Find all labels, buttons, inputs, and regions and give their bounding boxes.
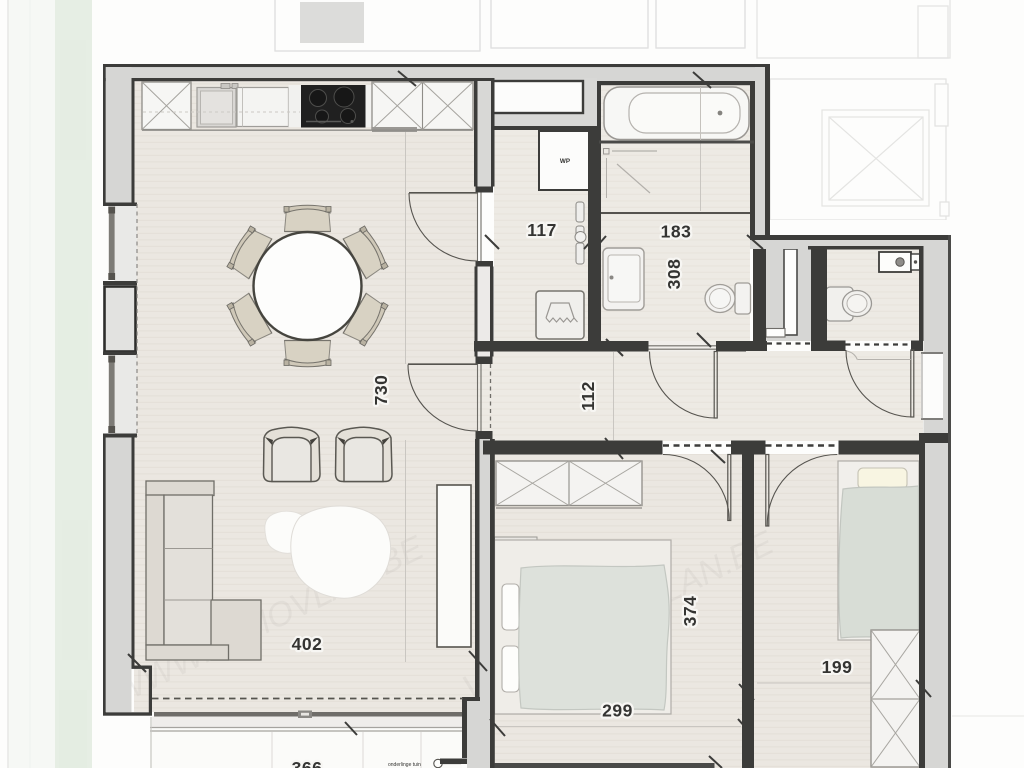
svg-text:730: 730	[371, 375, 391, 406]
svg-text:402: 402	[292, 634, 323, 654]
svg-text:366: 366	[292, 758, 323, 768]
svg-text:117: 117	[527, 220, 557, 240]
svg-text:183: 183	[661, 222, 692, 242]
svg-text:308: 308	[664, 259, 684, 290]
svg-text:WP: WP	[560, 158, 570, 165]
svg-text:199: 199	[822, 657, 853, 677]
svg-text:374: 374	[680, 596, 700, 627]
svg-text:onderlinge tuin: onderlinge tuin	[388, 762, 421, 768]
svg-text:112: 112	[578, 381, 598, 411]
svg-text:299: 299	[602, 701, 633, 721]
